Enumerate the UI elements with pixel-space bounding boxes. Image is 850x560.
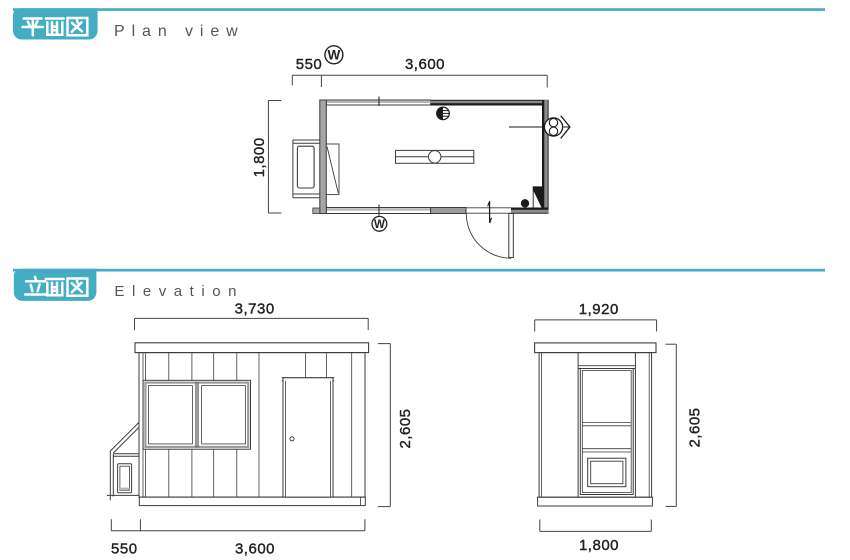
svg-text:3,730: 3,730 [235, 301, 275, 318]
svg-text:Elevation: Elevation [114, 283, 244, 300]
svg-text:2,605: 2,605 [686, 407, 703, 447]
svg-text:W: W [374, 219, 385, 231]
svg-text:3,600: 3,600 [405, 56, 445, 73]
svg-text:3,600: 3,600 [235, 541, 275, 558]
svg-text:1,800: 1,800 [579, 537, 619, 554]
svg-text:1,800: 1,800 [251, 137, 268, 177]
svg-text:W: W [328, 48, 341, 63]
svg-text:Plan view: Plan view [114, 23, 245, 40]
svg-text:1,920: 1,920 [579, 301, 619, 318]
svg-text:550: 550 [111, 541, 138, 558]
svg-text:550: 550 [296, 56, 323, 73]
svg-text:2,605: 2,605 [397, 408, 414, 448]
